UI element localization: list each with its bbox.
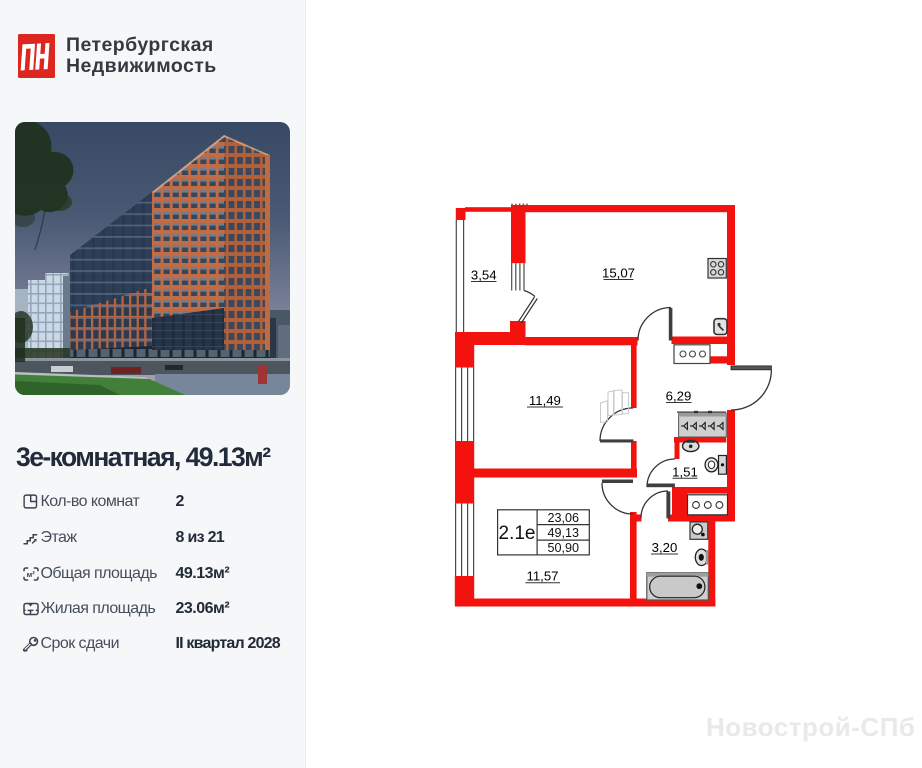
svg-text:23,06: 23,06	[547, 511, 579, 525]
svg-text:50,90: 50,90	[547, 541, 579, 555]
svg-text:11,49: 11,49	[529, 393, 561, 408]
svg-text:11,57: 11,57	[526, 569, 558, 584]
svg-text:15,07: 15,07	[602, 266, 635, 281]
svg-text:2.1е: 2.1е	[499, 523, 536, 544]
svg-text:м²: м²	[27, 569, 36, 578]
svg-text:6,29: 6,29	[666, 389, 692, 404]
svg-text:3,20: 3,20	[652, 540, 678, 555]
svg-text:1,51: 1,51	[672, 464, 698, 479]
svg-text:49,13: 49,13	[547, 526, 579, 540]
svg-text:3,54: 3,54	[471, 268, 497, 283]
